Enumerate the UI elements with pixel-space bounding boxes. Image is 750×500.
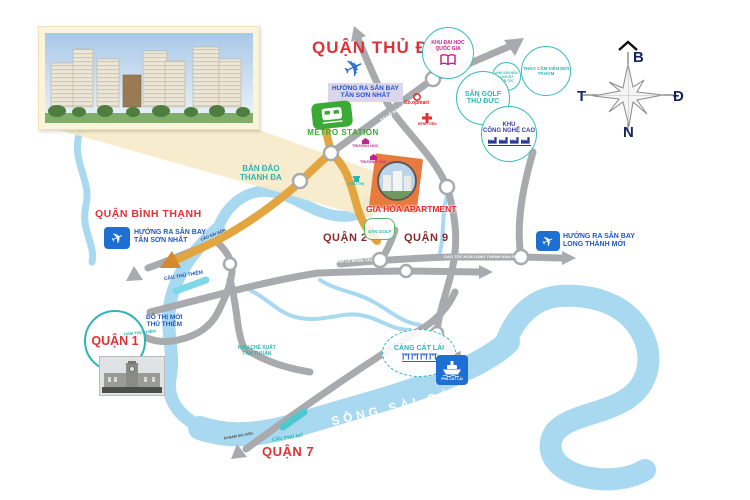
crane-icon (411, 352, 419, 360)
metro-station-sign (311, 100, 353, 130)
line: HƯỚNG RA SÂN BAY (563, 233, 635, 241)
line: TÂN SƠN NHẤT (332, 92, 399, 99)
apartment-rendering (45, 33, 253, 123)
road-label-cao-toc: CAO TỐC HCM LONG THÀNH DẦU GIÂY (444, 254, 521, 259)
airplane-sign-right: ✈ (536, 231, 560, 251)
line: THỦ ĐỨC (467, 98, 499, 105)
airplane-icon: ✈ (539, 231, 557, 251)
school-marker-2: TRƯỜNG HỌC (360, 154, 387, 164)
line: SIÊU THỊ (348, 182, 364, 186)
train-icon (317, 105, 347, 126)
crane-icon (420, 352, 428, 360)
metro-station-label: METRO STATION (298, 128, 388, 137)
factory-icons (488, 136, 531, 146)
supermarket-marker: SIÊU THỊ (348, 176, 364, 186)
compass-north-label: B (633, 49, 644, 66)
line: CÔNG NGHỆ CAO (483, 128, 535, 134)
project-site-photo (377, 161, 417, 201)
hospital-marker: BỆNH VIỆN (418, 113, 436, 127)
direction-tan-son-nhat-top: HƯỚNG RA SÂN BAY TÂN SƠN NHẤT (328, 83, 403, 102)
line: HƯỚNG RA SÂN BAY (134, 229, 206, 237)
line: TRƯỜNG HỌC (360, 160, 387, 164)
airplane-sign-left: ✈ (104, 227, 130, 249)
factory-icon (510, 136, 520, 144)
district-label-binh-thanh: QUẬN BÌNH THẠNH (95, 208, 202, 220)
line: SÂN GOLF (368, 229, 391, 234)
cat-lai-port-label: CẢNG CÁT LÁI (394, 345, 444, 352)
compass-rose: B Đ T N (575, 38, 685, 138)
compass-west-label: T (577, 88, 586, 105)
cat-lai-ferry-sign: PHÀ CÁT LÁI (436, 355, 468, 385)
project-photo-inset (38, 26, 260, 130)
ben-thanh-photo (99, 356, 165, 396)
poi-circle-cong-nghe-cao: KHU CÔNG NGHỆ CAO (481, 106, 537, 162)
coopmart-marker: Co.opmart (404, 93, 429, 107)
district-label-q9: QUẬN 9 (404, 232, 449, 245)
line: TÂN SƠN NHẤT (134, 237, 206, 245)
line: THỦ THIÊM (146, 321, 183, 328)
book-icon (440, 54, 456, 66)
thanh-da-label: BÁN ĐẢO THANH ĐA (240, 164, 282, 182)
direction-long-thanh: HƯỚNG RA SÂN BAY LONG THÀNH MỚI (563, 233, 635, 249)
ferry-label: PHÀ CÁT LÁI (441, 377, 462, 381)
factory-icon (488, 136, 498, 144)
crane-icon (402, 352, 410, 360)
line: QUỐC GIA (435, 46, 460, 52)
airplane-icon: ✈ (107, 227, 126, 249)
project-thumbnail (379, 163, 415, 199)
line: SÂN GOLF (465, 91, 501, 98)
project-name-label: GIA HÒA APARTMENT (366, 205, 457, 215)
district-label-q7: QUẬN 7 (262, 445, 314, 460)
thu-thiem-new-urban-label: ĐÔ THỊ MỚI THỦ THIÊM (146, 314, 183, 329)
tan-thuan-epz-label: KHU CHẾ XUẤT TÂN THUẬN (238, 346, 276, 358)
compass-east-label: Đ (673, 88, 684, 105)
compass-south-label: N (623, 124, 634, 138)
line: BỆNH VIỆN (418, 122, 436, 126)
crane-icons (402, 352, 437, 362)
line: TÂN THUẬN (238, 352, 276, 358)
line: BÁN ĐẢO (240, 164, 282, 173)
district-label-q2: QUẬN 2 (323, 232, 368, 245)
line: LONG THÀNH MỚI (563, 241, 635, 249)
golf-course-badge: SÂN GOLF (364, 218, 395, 240)
line: TRƯỜNG HỌC (352, 144, 379, 148)
direction-tan-son-nhat-left: HƯỚNG RA SÂN BAY TÂN SƠN NHẤT (134, 229, 206, 245)
line: THANH ĐA (240, 173, 282, 182)
ship-icon (440, 359, 464, 377)
location-map: B Đ T N QUẬN THỦ ĐỨC QUẬN BÌNH THẠNH QUẬ… (0, 0, 750, 500)
line: TP.HCM (538, 71, 555, 76)
factory-icon (521, 136, 531, 144)
factory-icon (499, 136, 509, 144)
school-marker-1: TRƯỜNG HỌC (352, 138, 379, 148)
poi-circle-khu-dai-hoc: KHU ĐẠI HỌC QUỐC GIA (422, 27, 474, 79)
poi-circle-thao-cam-vien: THẢO CẦM VIÊN MỚI TP.HCM (521, 46, 571, 96)
